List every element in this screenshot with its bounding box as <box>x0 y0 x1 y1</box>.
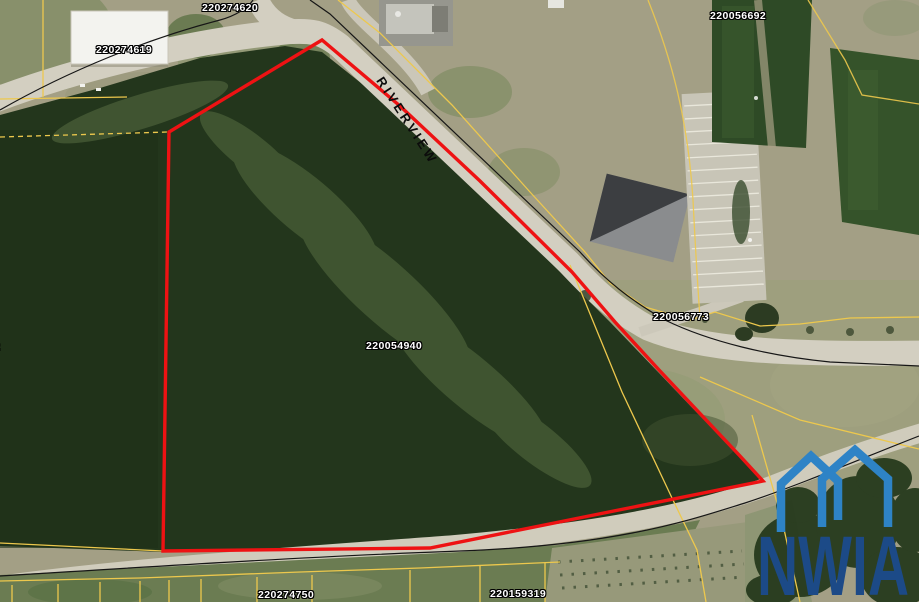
logo-text: NWIA <box>757 519 909 602</box>
building-top-house <box>379 0 453 46</box>
parcel-label: 220056692 <box>710 10 766 22</box>
parcel-label: 220056773 <box>653 311 709 323</box>
parcel-label: 220274620 <box>202 2 258 14</box>
map-viewport[interactable]: NWIA 220274620 220274619 220056692 22005… <box>0 0 919 602</box>
parcel-label: 220274750 <box>258 589 314 601</box>
aerial-basemap[interactable]: NWIA <box>0 0 919 602</box>
parcel-label: 220274619 <box>96 44 152 56</box>
parcel-label: 220159319 <box>490 588 546 600</box>
parcel-label: 220054940 <box>366 340 422 352</box>
